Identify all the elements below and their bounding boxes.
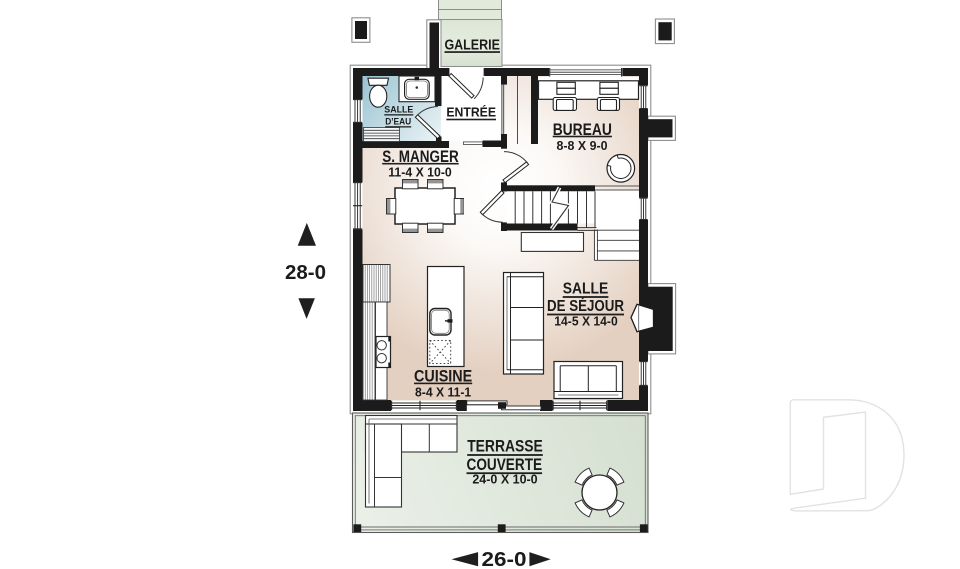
svg-text:11-4 X 10-0: 11-4 X 10-0 — [388, 164, 452, 179]
svg-text:SALLE: SALLE — [563, 281, 609, 298]
svg-text:DE SÉJOUR: DE SÉJOUR — [547, 296, 624, 315]
svg-text:GALERIE: GALERIE — [444, 36, 500, 53]
svg-text:TERRASSE: TERRASSE — [467, 437, 543, 456]
svg-text:D’EAU: D’EAU — [385, 117, 411, 127]
svg-text:24-0 X 10-0: 24-0 X 10-0 — [472, 472, 537, 487]
svg-text:8-8 X 9-0: 8-8 X 9-0 — [557, 138, 608, 153]
svg-text:14-5 X 14-0: 14-5 X 14-0 — [554, 313, 617, 328]
svg-text:ENTRÉE: ENTRÉE — [446, 105, 496, 120]
svg-text:SALLE: SALLE — [384, 105, 413, 115]
svg-text:8-4 X 11-1: 8-4 X 11-1 — [415, 384, 471, 399]
svg-text:CUISINE: CUISINE — [414, 366, 472, 385]
svg-text:26-0: 26-0 — [482, 548, 527, 569]
svg-text:28-0: 28-0 — [285, 261, 326, 284]
